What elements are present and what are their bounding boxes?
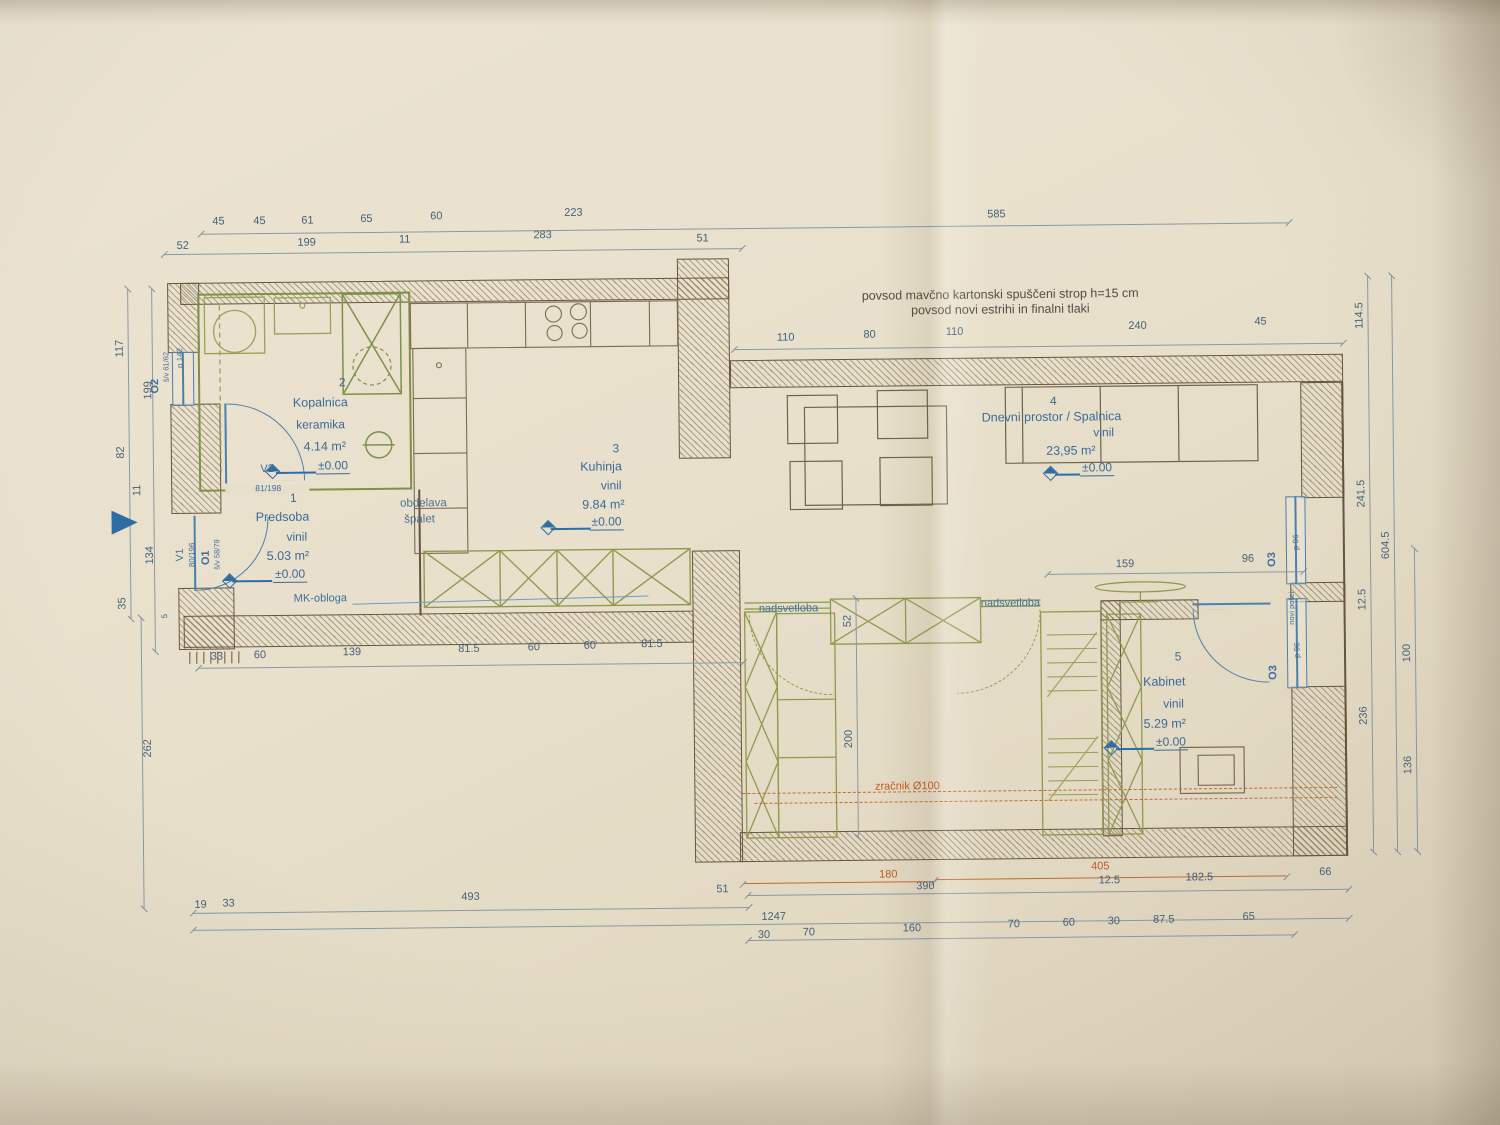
room-floor-kabinet: vinil — [1163, 696, 1184, 710]
dim-label: 66 — [1319, 866, 1331, 878]
mk-obloga-label: MK-obloga — [294, 592, 347, 605]
room-level-kuhinja: ±0.00 — [590, 514, 624, 530]
opening-label-o1: O1 — [200, 550, 212, 565]
dim-label: 585 — [987, 208, 1005, 220]
kitchen-counter — [410, 301, 680, 554]
dim-label: 236 — [1358, 706, 1370, 724]
dining-set — [787, 390, 947, 510]
room-number-kopalnica: 2 — [339, 375, 346, 389]
dim-label: 81.5 — [458, 643, 480, 655]
dim-label: 5 — [160, 614, 169, 619]
opening-label-o3-upper: O3 — [1266, 552, 1278, 567]
ceiling-note-line1: povsod mavčno kartonski spuščeni strop h… — [862, 286, 1139, 303]
dim-label: 52 — [176, 240, 188, 252]
dim-label: 182.5 — [1186, 871, 1214, 883]
dim-label: 604.5 — [1380, 532, 1392, 560]
opening-parapet-o3-lower: p 96 — [1292, 642, 1301, 658]
dim-label: 61 — [301, 215, 313, 227]
ceiling-note-line2: povsod novi estrihi in finalni tlaki — [911, 301, 1090, 317]
opening-size-o1: š/v 58/79 — [212, 539, 221, 570]
dim-label: 139 — [343, 646, 361, 658]
dim-label: 11 — [399, 234, 411, 246]
vent-label: zračnik Ø100 — [875, 780, 940, 793]
room-number-predsoba: 1 — [290, 491, 297, 505]
dim-label: 65 — [360, 213, 372, 225]
dim-label-orange: 405 — [1091, 860, 1109, 872]
chair — [787, 395, 837, 444]
tv-stand — [1095, 581, 1185, 602]
dim-label: 1247 — [761, 911, 786, 923]
room-area-predsoba: 5.03 m² — [267, 549, 310, 563]
shelf-note-label: novi polici — [1287, 592, 1296, 625]
dim-label: 200 — [843, 730, 855, 748]
room-number-kuhinja: 3 — [612, 441, 619, 455]
dim-label: 60 — [1063, 917, 1075, 929]
room-level-dnevni: ±0.00 — [1080, 460, 1114, 476]
room-level-predsoba: ±0.00 — [273, 567, 307, 583]
dim-label: 30 — [758, 929, 770, 941]
chair — [880, 457, 932, 506]
room-name-dnevni: Dnevni prostor / Spalnica — [982, 409, 1122, 424]
dim-label: 60 — [584, 640, 596, 652]
opening-label-v2: V2 — [260, 463, 274, 475]
stove-burner — [547, 325, 562, 340]
dim-label: 52 — [842, 615, 854, 627]
dim-label: 96 — [1242, 553, 1254, 565]
dim-label: 33 — [211, 651, 223, 663]
room-name-kuhinja: Kuhinja — [580, 459, 622, 473]
dim-label: 283 — [533, 229, 551, 241]
dim-label: 33 — [222, 897, 234, 909]
dim-label: 45 — [212, 215, 224, 227]
room-area-kuhinja: 9.84 m² — [582, 497, 625, 511]
opening-size-v1: 80/196 — [187, 543, 196, 568]
room-floor-kuhinja: vinil — [601, 478, 622, 492]
kabinet-desk — [1180, 747, 1244, 794]
chair — [790, 461, 842, 510]
dim-label-orange: 180 — [879, 868, 897, 880]
dining-table — [804, 406, 947, 505]
dim-label: 390 — [916, 880, 934, 892]
room-name-predsoba: Predsoba — [256, 510, 310, 525]
opening-label-o3-lower: O3 — [1267, 665, 1279, 680]
dim-label: 51 — [716, 883, 728, 895]
nadsvetloba-label-right: nadsvetloba — [981, 597, 1040, 610]
dim-label: 65 — [1243, 911, 1255, 923]
dim-label: 60 — [528, 641, 540, 653]
dim-label: 87.5 — [1153, 914, 1175, 926]
scanned-floor-plan-photo: 45 45 61 65 60 223 585 52 199 11 283 51 … — [0, 0, 1500, 1125]
dim-label: 35 — [116, 597, 128, 609]
dim-label: 100 — [1401, 644, 1413, 662]
washing-machine — [204, 297, 265, 354]
dim-label: 199 — [297, 237, 315, 249]
dim-label: 45 — [1254, 316, 1266, 328]
dim-label: 70 — [803, 926, 815, 938]
dim-label: 11 — [131, 485, 143, 497]
nadsvetloba-label-left: nadsvetloba — [759, 602, 818, 615]
dim-label: 19 — [194, 899, 206, 911]
dim-label: 12.5 — [1356, 589, 1368, 611]
room-number-dnevni: 4 — [1050, 394, 1057, 408]
kabinet-wardrobe — [1107, 614, 1143, 834]
washbasin-drain — [300, 303, 305, 308]
chair — [877, 390, 927, 439]
shower-and-wc — [342, 294, 402, 459]
dim-label: 12.5 — [1099, 874, 1121, 886]
dim-label: 30 — [1108, 915, 1120, 927]
dim-label: 45 — [253, 215, 265, 227]
dim-label: 110 — [946, 326, 964, 338]
dim-label: 81.5 — [641, 638, 663, 650]
dim-label: 60 — [254, 649, 266, 661]
room-floor-dnevni: vinil — [1093, 425, 1114, 439]
opening-label-o2: O2 — [149, 379, 161, 394]
room-area-dnevni: 23,95 m² — [1046, 443, 1095, 458]
dim-label: 114.5 — [1353, 302, 1365, 329]
opening-label-v1: V1 — [174, 548, 186, 561]
sofa — [1005, 385, 1258, 464]
obdelava-note-line1: obdelava — [400, 497, 447, 509]
dim-label: 262 — [142, 739, 154, 757]
opening-parapet-o2: p 142 — [175, 348, 184, 368]
opening-parapet-o3-upper: p 96 — [1291, 534, 1300, 550]
dim-label: 241.5 — [1355, 480, 1367, 508]
stove-burner — [545, 306, 561, 322]
level-line-dnevni — [1055, 474, 1080, 476]
room-floor-predsoba: vinil — [286, 530, 307, 544]
room-name-kopalnica: Kopalnica — [293, 395, 348, 410]
bathroom-dashed-edge — [219, 306, 221, 476]
stove-burner — [570, 304, 586, 320]
dim-label: 493 — [461, 891, 479, 903]
dim-label: 160 — [903, 922, 921, 934]
dim-label: 110 — [777, 332, 795, 344]
room-name-kabinet: Kabinet — [1143, 674, 1186, 688]
opening-size-o2: š/v 61/62 — [161, 352, 170, 383]
dim-label: 134 — [144, 546, 156, 564]
dim-label: 159 — [1116, 558, 1134, 570]
dim-label: 240 — [1128, 320, 1146, 332]
obdelava-note-line2: špalet — [404, 513, 435, 525]
room-number-kabinet: 5 — [1175, 649, 1182, 663]
opening-size-v2: 81/198 — [255, 483, 281, 493]
entry-arrow-marker — [111, 510, 137, 534]
room-level-kopalnica: ±0.00 — [316, 458, 350, 474]
stove-burner — [572, 323, 587, 338]
room-area-kabinet: 5.29 m² — [1143, 716, 1186, 730]
dim-label: 60 — [430, 210, 442, 222]
dim-label: 51 — [696, 232, 708, 244]
hanging-rods — [1047, 632, 1099, 801]
dim-label: 82 — [115, 446, 127, 458]
dim-label: 70 — [1008, 918, 1020, 930]
dim-label: 136 — [1402, 756, 1414, 774]
dim-label: 117 — [114, 340, 126, 358]
room-floor-kopalnica: keramika — [296, 417, 345, 432]
floor-plan: 45 45 61 65 60 223 585 52 199 11 283 51 … — [0, 0, 1500, 1125]
room-level-kabinet: ±0.00 — [1154, 734, 1188, 750]
dim-label: 80 — [863, 329, 875, 341]
room-area-kopalnica: 4.14 m² — [304, 439, 347, 453]
dim-label: 223 — [564, 207, 582, 219]
